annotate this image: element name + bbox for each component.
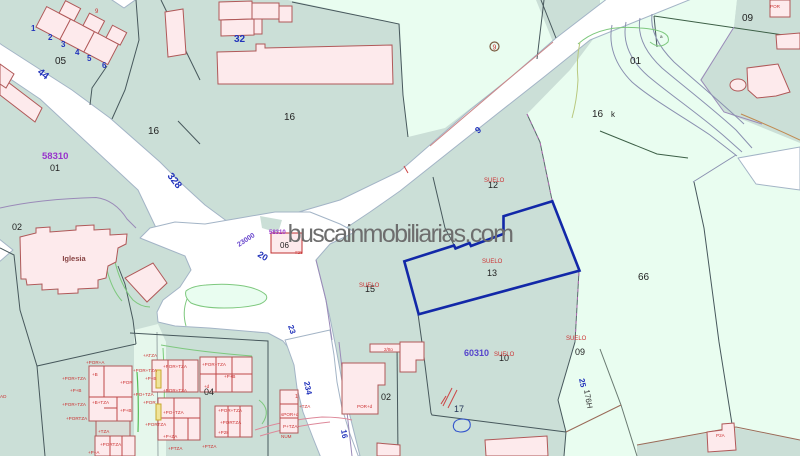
svg-text:SUELO: SUELO [484, 178, 505, 184]
svg-text:16: 16 [592, 109, 604, 120]
svg-text:3: 3 [61, 40, 66, 49]
svg-text:05: 05 [55, 56, 67, 67]
svg-text:58310: 58310 [269, 230, 286, 236]
svg-text:09: 09 [575, 347, 585, 357]
svg-text:buscainmobiliarias.com: buscainmobiliarias.com [288, 220, 513, 248]
svg-text:02: 02 [381, 392, 391, 402]
svg-text:+P+B: +P+B [224, 374, 236, 379]
svg-text:SUELO: SUELO [482, 259, 503, 265]
svg-text:+POR+TZA: +POR+TZA [163, 364, 188, 369]
svg-text:SUELO: SUELO [359, 283, 380, 289]
svg-text:+PORTZA: +PORTZA [145, 422, 167, 427]
svg-text:1: 1 [295, 394, 298, 400]
svg-text:POR+d: POR+d [357, 404, 373, 409]
svg-text:+POR+TZA: +POR+TZA [218, 408, 243, 413]
svg-text:+PO+TZA: +PO+TZA [133, 392, 155, 397]
svg-text:+P+A: +P+A [88, 450, 100, 455]
svg-text:13: 13 [487, 268, 497, 278]
svg-text:AD: AD [0, 394, 7, 399]
svg-text:66: 66 [638, 272, 650, 283]
svg-text:+POR+A: +POR+A [86, 360, 105, 365]
svg-text:+POR+TZA: +POR+TZA [163, 388, 188, 393]
svg-text:+PORTZA: +PORTZA [100, 442, 122, 447]
svg-text:POR: POR [770, 4, 781, 9]
svg-text:+TZA: +TZA [98, 429, 110, 434]
svg-text:+B+TZA: +B+TZA [92, 400, 110, 405]
svg-text:+PTZA: +PTZA [202, 444, 217, 449]
svg-text:9: 9 [493, 45, 497, 52]
svg-text:P+TZA: P+TZA [283, 424, 298, 429]
svg-text:Iglesia: Iglesia [62, 254, 86, 263]
svg-text:6: 6 [102, 61, 107, 70]
svg-text:+POR+TZA: +POR+TZA [62, 376, 87, 381]
svg-text:+PTZA: +PTZA [168, 446, 183, 451]
svg-text:+POR+TZA: +POR+TZA [62, 402, 87, 407]
svg-text:16: 16 [148, 126, 160, 137]
svg-text:+P+B: +P+B [120, 408, 132, 413]
svg-text:SUELO: SUELO [494, 352, 515, 358]
svg-text:5: 5 [87, 54, 92, 63]
svg-text:+B: +B [92, 372, 98, 377]
svg-text:+P+ZA: +P+ZA [163, 434, 178, 439]
svg-text:NUM: NUM [281, 434, 292, 439]
svg-text:16: 16 [284, 112, 296, 123]
svg-text:+POR: +POR [143, 400, 156, 405]
svg-text:32: 32 [234, 34, 246, 45]
svg-text:1: 1 [31, 24, 36, 33]
svg-text:4: 4 [75, 48, 80, 57]
svg-text:02: 02 [12, 222, 22, 232]
svg-text:+PORTZA: +PORTZA [66, 416, 88, 421]
svg-text:17: 17 [454, 404, 464, 414]
svg-text:+POR: +POR [120, 380, 133, 385]
svg-text:#28: #28 [295, 250, 303, 255]
svg-text:P2A: P2A [716, 433, 726, 438]
svg-text:2: 2 [48, 33, 53, 42]
svg-text:2/tto: 2/tto [384, 347, 393, 352]
svg-text:+PORTZA: +PORTZA [220, 420, 242, 425]
svg-text:09: 09 [742, 13, 754, 24]
svg-text:SUELO: SUELO [566, 336, 587, 342]
svg-text:sPOR+d: sPOR+d [281, 412, 299, 417]
svg-text:+d: +d [204, 384, 210, 389]
svg-text:+ATZA: +ATZA [143, 353, 158, 358]
svg-text:+P+B: +P+B [70, 388, 82, 393]
svg-text:+PO+TZA: +PO+TZA [163, 410, 185, 415]
svg-text:+P28: +P28 [218, 430, 229, 435]
svg-text:01: 01 [50, 163, 60, 173]
svg-text:+P+B: +P+B [145, 376, 157, 381]
svg-text:+TZA: +TZA [299, 404, 311, 409]
svg-text:60310: 60310 [464, 348, 489, 358]
svg-text:01: 01 [630, 56, 642, 67]
svg-text:a: a [660, 34, 663, 39]
svg-text:+POR+TZA: +POR+TZA [133, 368, 158, 373]
svg-text:+POR+TZA: +POR+TZA [202, 362, 227, 367]
svg-text:58310: 58310 [42, 151, 68, 162]
